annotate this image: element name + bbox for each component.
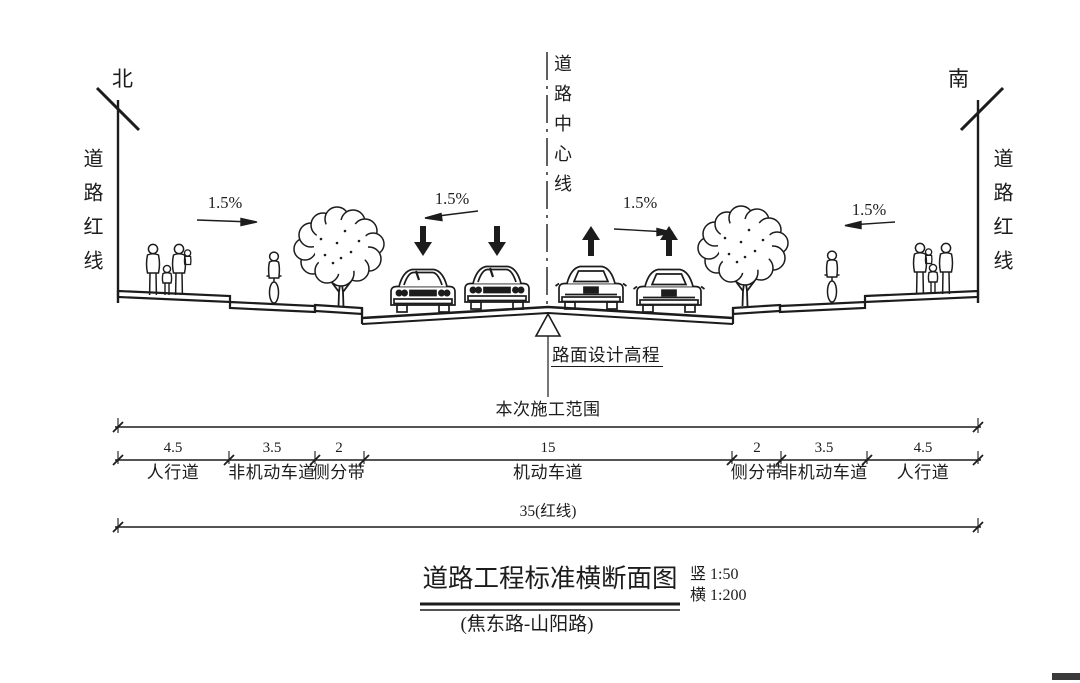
car-rear-icon-2 xyxy=(634,270,705,313)
slope-label-carriageway-right: 1.5% xyxy=(623,194,657,211)
scale-vertical: 竖 1:50 xyxy=(690,567,738,584)
segment-width-3: 15 xyxy=(541,441,556,457)
car-front-icon-2 xyxy=(465,267,529,310)
segment-width-4: 2 xyxy=(753,441,761,457)
redline-label-right: 道路红线 xyxy=(991,148,1011,284)
redline-label-left: 道路红线 xyxy=(81,148,101,284)
segment-width-2: 2 xyxy=(335,441,343,457)
construction-scope-label: 本次施工范围 xyxy=(496,401,601,419)
drawing-subtitle: (焦东路-山阳路) xyxy=(461,615,594,635)
bike-lane-slab-right xyxy=(780,302,865,312)
north-label: 北 xyxy=(112,68,133,90)
cyclist-icon-left xyxy=(267,252,282,303)
traffic-arrow-up-icon xyxy=(582,226,600,256)
drawing-title: 道路工程标准横断面图 xyxy=(422,566,677,593)
segment-width-6: 4.5 xyxy=(914,441,933,457)
segment-width-5: 3.5 xyxy=(815,441,834,457)
pedestrians-icon-right xyxy=(914,243,953,294)
south-label: 南 xyxy=(948,68,969,90)
segment-name-4: 侧分带 xyxy=(731,464,784,482)
centerline-label: 道路中心线 xyxy=(553,54,571,204)
segment-width-0: 4.5 xyxy=(164,441,183,457)
total-width-label: 35(红线) xyxy=(520,504,577,520)
sidewalk-slab-right xyxy=(865,291,978,302)
slope-label-sidewalk-right: 1.5% xyxy=(852,201,886,218)
elevation-label: 路面设计高程 xyxy=(551,346,663,367)
segment-name-1: 非机动车道 xyxy=(228,464,316,482)
segment-name-0: 人行道 xyxy=(147,464,200,482)
south-mark-icon xyxy=(961,88,1003,130)
divider-slab-right xyxy=(733,305,780,314)
slope-label-carriageway-left: 1.5% xyxy=(435,190,469,207)
car-front-icon-1 xyxy=(391,270,455,313)
road-cross-section-drawing: 北 南 道路红线 道路红线 道路中心线 1.5% 1.5% 1.5% 1.5% … xyxy=(0,0,1080,683)
tree-icon-right xyxy=(698,206,788,306)
tree-icon-left xyxy=(294,207,384,307)
pedestrians-icon-left xyxy=(147,244,191,295)
scale-horizontal: 横 1:200 xyxy=(690,588,746,605)
red-line-left xyxy=(97,88,139,303)
traffic-arrow-down-icon xyxy=(488,226,506,256)
corner-mark xyxy=(1052,673,1080,680)
car-rear-icon-1 xyxy=(556,267,627,310)
slope-label-sidewalk-left: 1.5% xyxy=(208,194,242,211)
elevation-triangle-icon xyxy=(536,314,560,336)
segment-name-2: 侧分带 xyxy=(313,464,366,482)
title-underline xyxy=(420,604,680,610)
segment-width-1: 3.5 xyxy=(263,441,282,457)
segment-name-6: 人行道 xyxy=(897,464,950,482)
bike-lane-slab-left xyxy=(230,302,315,312)
segment-name-5: 非机动车道 xyxy=(780,464,868,482)
segment-name-3: 机动车道 xyxy=(513,464,583,482)
traffic-arrow-down-icon xyxy=(414,226,432,256)
sidewalk-slab-left xyxy=(118,291,230,302)
cyclist-icon-right xyxy=(825,251,840,302)
